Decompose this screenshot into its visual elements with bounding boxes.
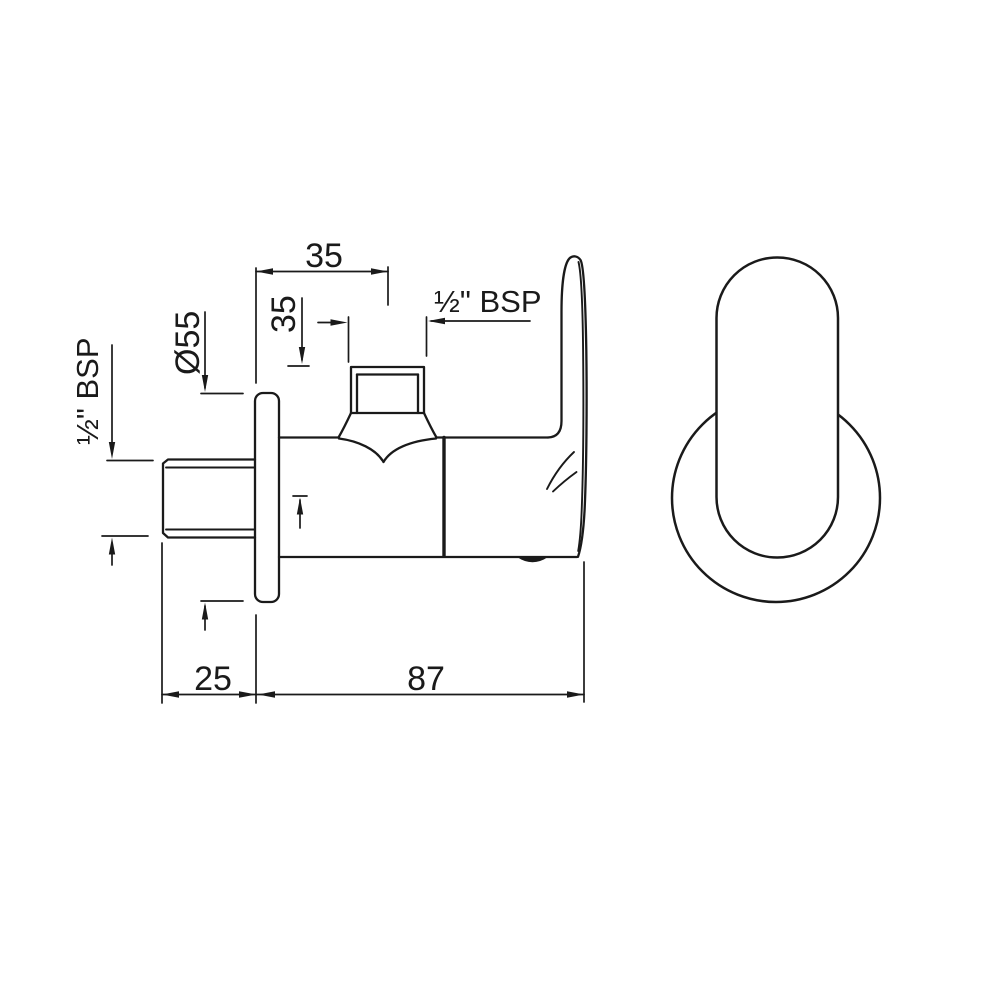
inlet-pipe <box>163 460 255 538</box>
dim-wall-to-spindle-label: 35 <box>305 237 343 275</box>
wall-flange-plate <box>255 393 279 602</box>
technical-drawing: 35 35 Ø55 ½" BSP ½" BSP 25 87 <box>0 0 1000 1000</box>
front-view <box>672 258 880 603</box>
inlet-thread-label: ½" BSP <box>70 337 105 445</box>
body-foot-nub <box>517 557 548 562</box>
dim-flange-diameter-label: Ø55 <box>169 311 207 375</box>
handle-contour-line <box>553 472 577 492</box>
spindle-housing <box>339 367 437 438</box>
valve-body <box>279 438 577 563</box>
dim-outlet-to-inlet-axis-label: 35 <box>265 295 303 333</box>
dim-inlet-projection-label: 25 <box>194 660 232 698</box>
front-handle-pill <box>717 258 839 558</box>
dim-overall-length-label: 87 <box>407 660 445 698</box>
lever-handle <box>547 256 587 556</box>
drawing-page: 35 35 Ø55 ½" BSP ½" BSP 25 87 <box>0 0 1000 1000</box>
outlet-thread-label: ½" BSP <box>434 284 542 319</box>
dimension-labels: 35 35 Ø55 ½" BSP ½" BSP 25 87 <box>70 237 542 698</box>
